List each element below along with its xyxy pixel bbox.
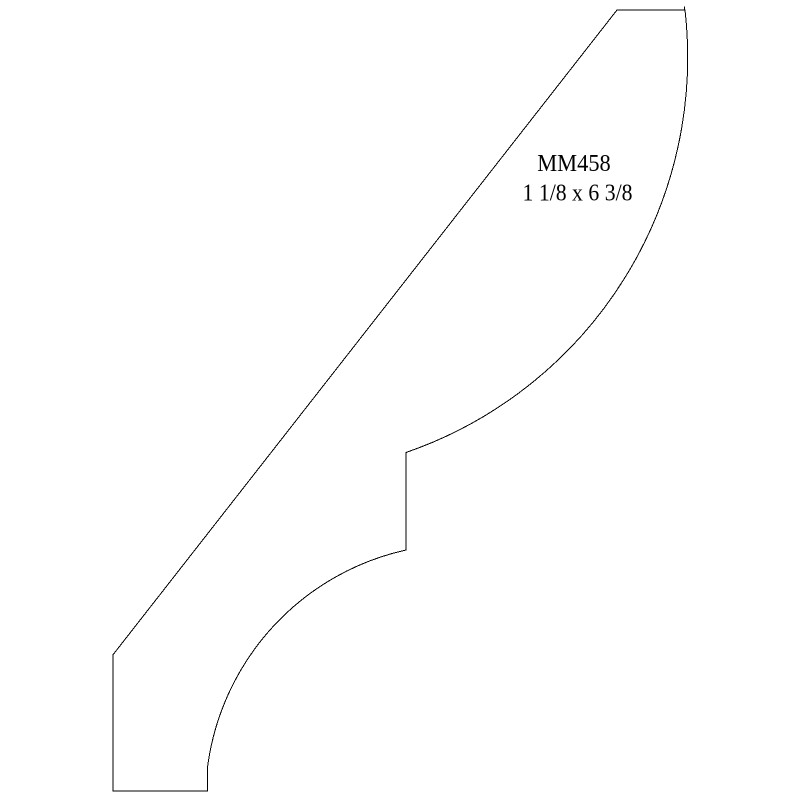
svg-text:MM458: MM458: [537, 151, 611, 177]
svg-text:1 1/8 x 6 3/8: 1 1/8 x 6 3/8: [523, 181, 633, 207]
